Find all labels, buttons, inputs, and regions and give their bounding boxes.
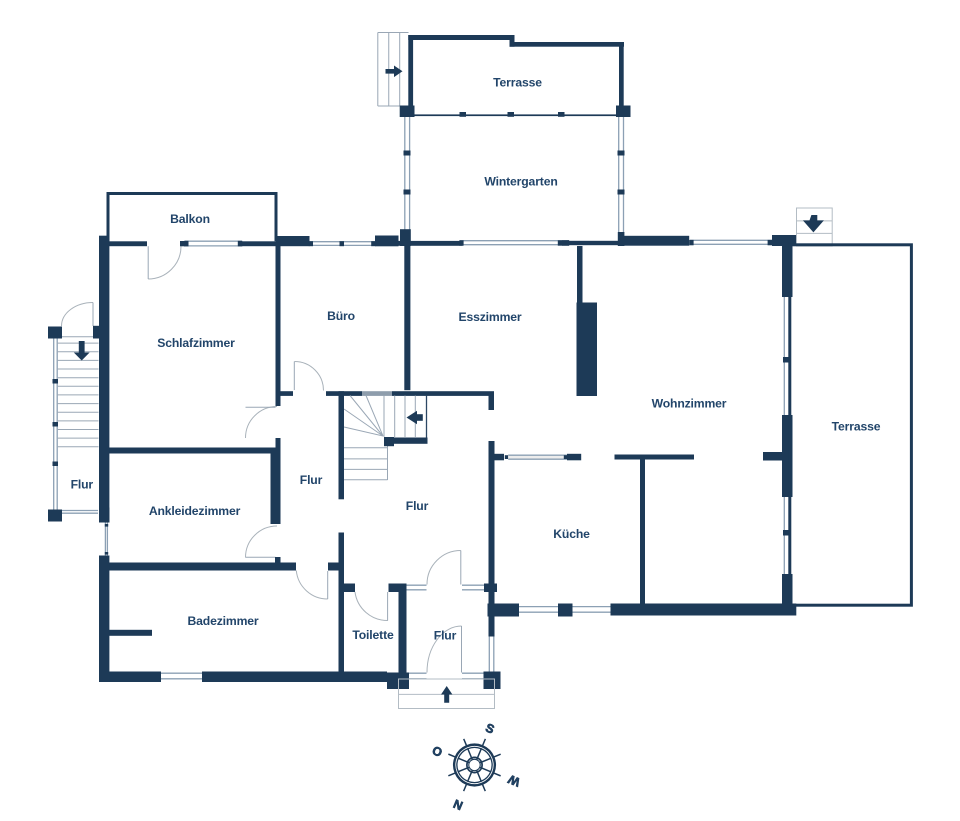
svg-text:W: W bbox=[506, 772, 522, 790]
svg-text:O: O bbox=[430, 743, 444, 760]
svg-text:Flur: Flur bbox=[300, 473, 323, 487]
svg-text:Flur: Flur bbox=[434, 629, 457, 643]
svg-text:Esszimmer: Esszimmer bbox=[458, 310, 521, 324]
svg-text:Badezimmer: Badezimmer bbox=[188, 614, 259, 628]
svg-text:S: S bbox=[483, 721, 496, 737]
svg-text:Schlafzimmer: Schlafzimmer bbox=[157, 336, 235, 350]
svg-text:Balkon: Balkon bbox=[170, 212, 210, 226]
svg-text:Ankleidezimmer: Ankleidezimmer bbox=[149, 504, 241, 518]
svg-text:Toilette: Toilette bbox=[352, 628, 394, 642]
svg-text:N: N bbox=[451, 797, 464, 813]
svg-text:Flur: Flur bbox=[71, 478, 94, 492]
svg-text:Flur: Flur bbox=[406, 499, 429, 513]
svg-text:Terrasse: Terrasse bbox=[832, 420, 881, 434]
svg-text:Büro: Büro bbox=[327, 309, 355, 323]
svg-text:Wintergarten: Wintergarten bbox=[484, 175, 557, 189]
svg-text:Wohnzimmer: Wohnzimmer bbox=[652, 397, 727, 411]
svg-text:Terrasse: Terrasse bbox=[493, 76, 542, 90]
svg-text:Küche: Küche bbox=[553, 527, 590, 541]
